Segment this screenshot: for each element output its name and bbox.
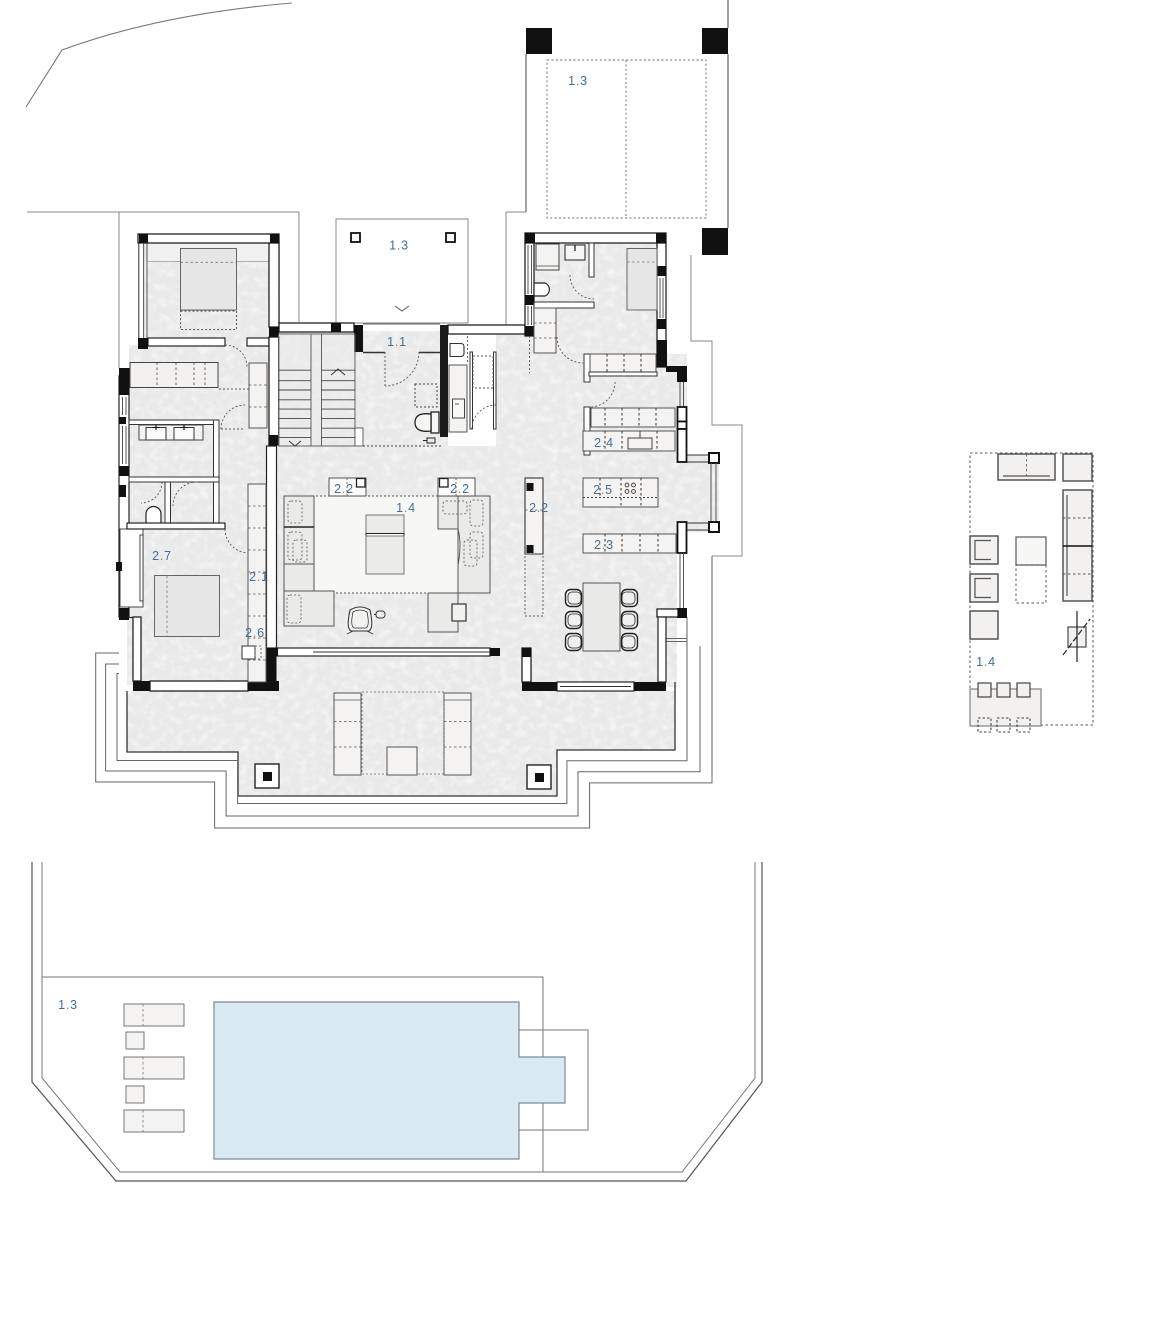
svg-text:1.1: 1.1 xyxy=(387,335,407,349)
svg-text:2.2: 2.2 xyxy=(450,482,470,496)
svg-text:2.2: 2.2 xyxy=(529,501,549,515)
svg-text:1.4: 1.4 xyxy=(976,655,996,669)
svg-text:2.1: 2.1 xyxy=(249,570,269,584)
svg-text:2.5: 2.5 xyxy=(593,483,613,497)
svg-text:2.2: 2.2 xyxy=(334,482,354,496)
svg-text:1.3: 1.3 xyxy=(568,74,588,88)
svg-text:1.4: 1.4 xyxy=(396,501,416,515)
svg-text:2.3: 2.3 xyxy=(594,538,614,552)
svg-text:2.4: 2.4 xyxy=(594,436,614,450)
svg-text:1.3: 1.3 xyxy=(58,998,78,1012)
svg-text:2.7: 2.7 xyxy=(152,549,172,563)
svg-text:1.3: 1.3 xyxy=(389,239,409,253)
svg-text:2.6: 2.6 xyxy=(245,626,265,640)
